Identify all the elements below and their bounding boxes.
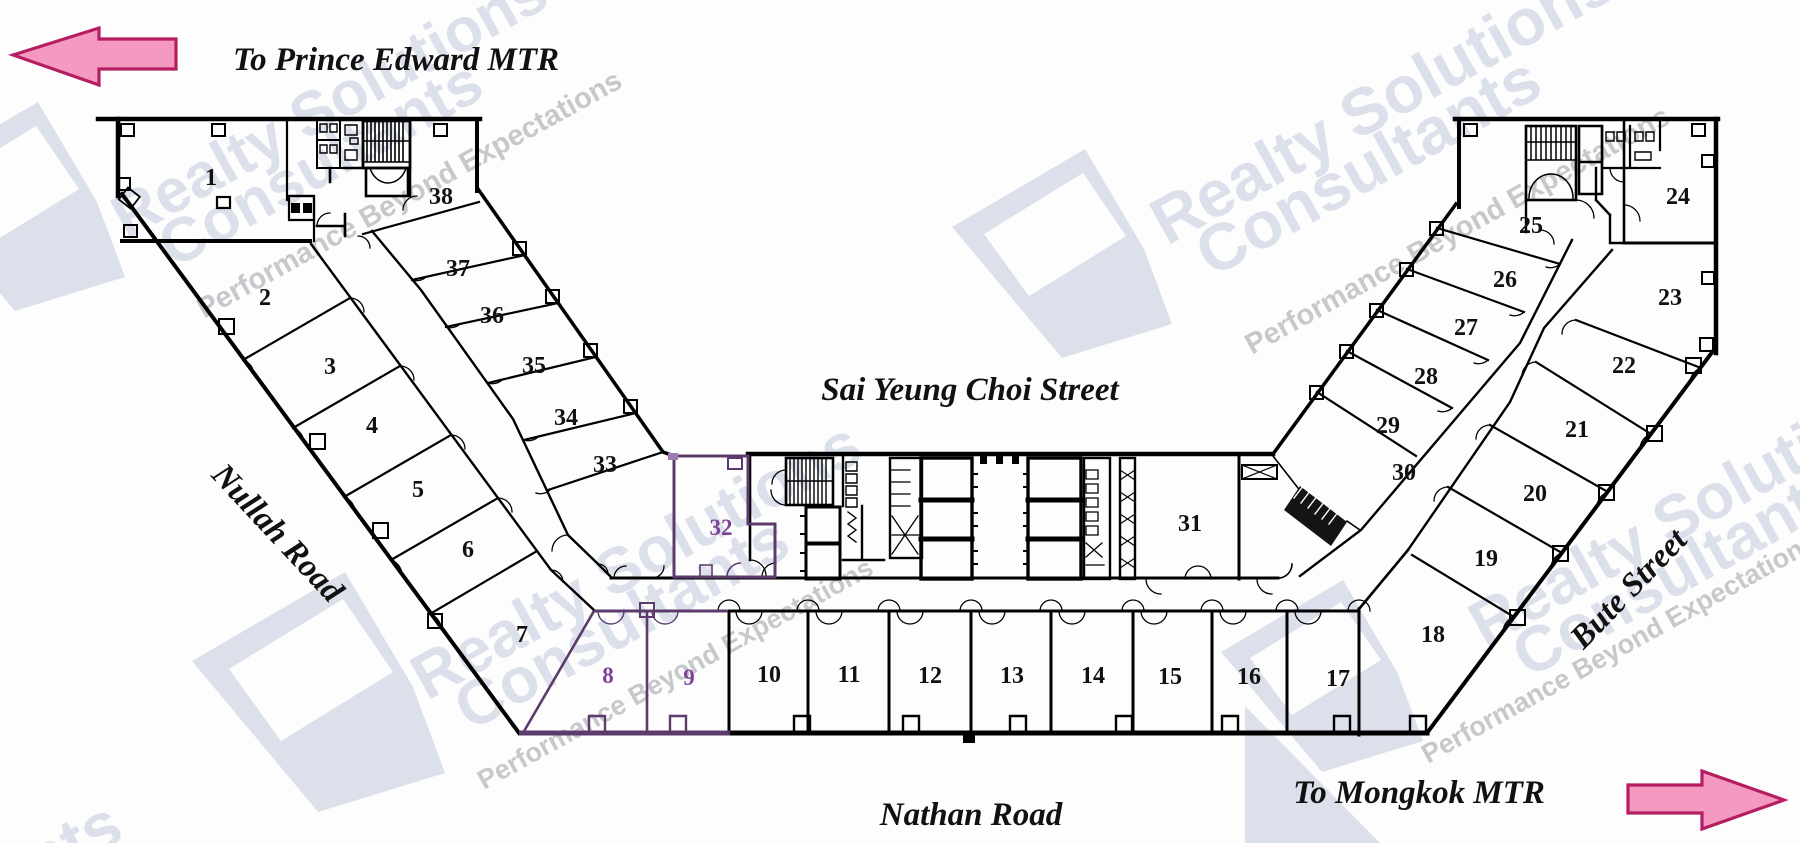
svg-text:13: 13 — [1000, 663, 1024, 689]
svg-text:Nathan Road: Nathan Road — [879, 797, 1063, 833]
svg-text:11: 11 — [838, 662, 861, 688]
svg-text:27: 27 — [1454, 315, 1478, 341]
svg-text:To Mongkok MTR: To Mongkok MTR — [1293, 775, 1545, 811]
svg-text:38: 38 — [429, 184, 453, 210]
svg-text:8: 8 — [602, 663, 614, 688]
svg-text:4: 4 — [366, 413, 378, 439]
svg-text:2: 2 — [259, 285, 271, 311]
svg-text:16: 16 — [1237, 664, 1261, 690]
svg-text:33: 33 — [593, 452, 617, 478]
svg-text:30: 30 — [1392, 460, 1416, 486]
svg-text:10: 10 — [757, 662, 781, 688]
svg-text:14: 14 — [1081, 663, 1105, 689]
svg-text:35: 35 — [522, 353, 546, 379]
svg-text:19: 19 — [1474, 546, 1498, 572]
svg-text:34: 34 — [554, 405, 578, 431]
svg-text:28: 28 — [1414, 364, 1438, 390]
svg-text:7: 7 — [516, 622, 528, 648]
svg-text:5: 5 — [412, 477, 424, 503]
svg-text:15: 15 — [1158, 664, 1182, 690]
svg-text:18: 18 — [1421, 622, 1445, 648]
svg-text:29: 29 — [1376, 413, 1400, 439]
svg-text:25: 25 — [1519, 213, 1543, 239]
svg-text:20: 20 — [1523, 481, 1547, 507]
svg-text:17: 17 — [1326, 666, 1350, 692]
svg-text:6: 6 — [462, 537, 474, 563]
svg-text:9: 9 — [683, 665, 695, 690]
svg-text:37: 37 — [446, 256, 470, 282]
svg-text:24: 24 — [1666, 184, 1690, 210]
svg-text:3: 3 — [324, 354, 336, 380]
svg-text:22: 22 — [1612, 353, 1636, 379]
svg-text:26: 26 — [1493, 267, 1517, 293]
svg-text:12: 12 — [918, 663, 942, 689]
svg-text:1: 1 — [205, 165, 217, 191]
svg-text:32: 32 — [710, 515, 733, 540]
svg-text:Sai Yeung Choi Street: Sai Yeung Choi Street — [821, 372, 1119, 408]
svg-text:31: 31 — [1178, 511, 1202, 537]
svg-text:23: 23 — [1658, 285, 1682, 311]
svg-text:36: 36 — [480, 303, 504, 329]
svg-text:To Prince Edward MTR: To Prince Edward MTR — [233, 42, 559, 78]
svg-text:21: 21 — [1565, 417, 1589, 443]
